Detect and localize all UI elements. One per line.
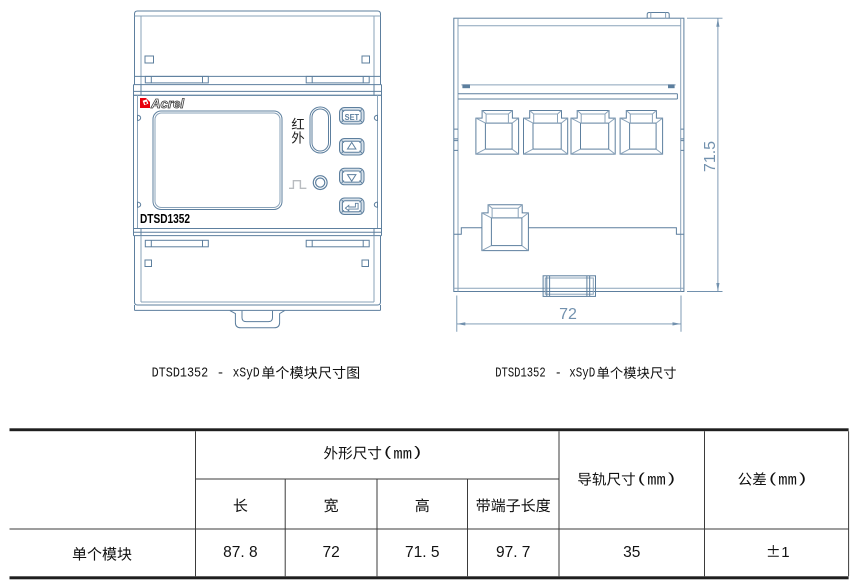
svg-text:71. 5: 71. 5: [405, 544, 439, 561]
svg-text:Acrel: Acrel: [150, 97, 185, 111]
svg-text:xSyD: xSyD: [233, 365, 260, 381]
svg-text:-: -: [555, 365, 562, 381]
svg-text:mm: mm: [778, 472, 797, 490]
svg-text:DTSD1352: DTSD1352: [140, 211, 190, 226]
svg-text:1: 1: [781, 544, 789, 561]
svg-text:87. 8: 87. 8: [223, 544, 257, 561]
svg-text:(: (: [384, 443, 391, 459]
svg-text:(: (: [638, 469, 645, 485]
svg-text:xSyD: xSyD: [569, 365, 595, 381]
svg-text:72: 72: [559, 306, 577, 323]
svg-text:mm: mm: [647, 472, 666, 490]
svg-text:-: -: [217, 365, 225, 381]
svg-text:71.5: 71.5: [702, 141, 719, 172]
svg-text:DTSD1352: DTSD1352: [152, 365, 209, 381]
svg-text:): ): [414, 443, 421, 459]
svg-text:): ): [668, 469, 675, 485]
svg-text:): ): [799, 469, 806, 485]
svg-text:97. 7: 97. 7: [496, 544, 530, 561]
svg-text:mm: mm: [393, 445, 412, 463]
svg-text:SET: SET: [345, 112, 360, 122]
svg-text:DTSD1352: DTSD1352: [495, 365, 546, 381]
svg-text:72: 72: [322, 544, 339, 561]
svg-text:35: 35: [623, 544, 640, 561]
svg-text:(: (: [769, 469, 776, 485]
